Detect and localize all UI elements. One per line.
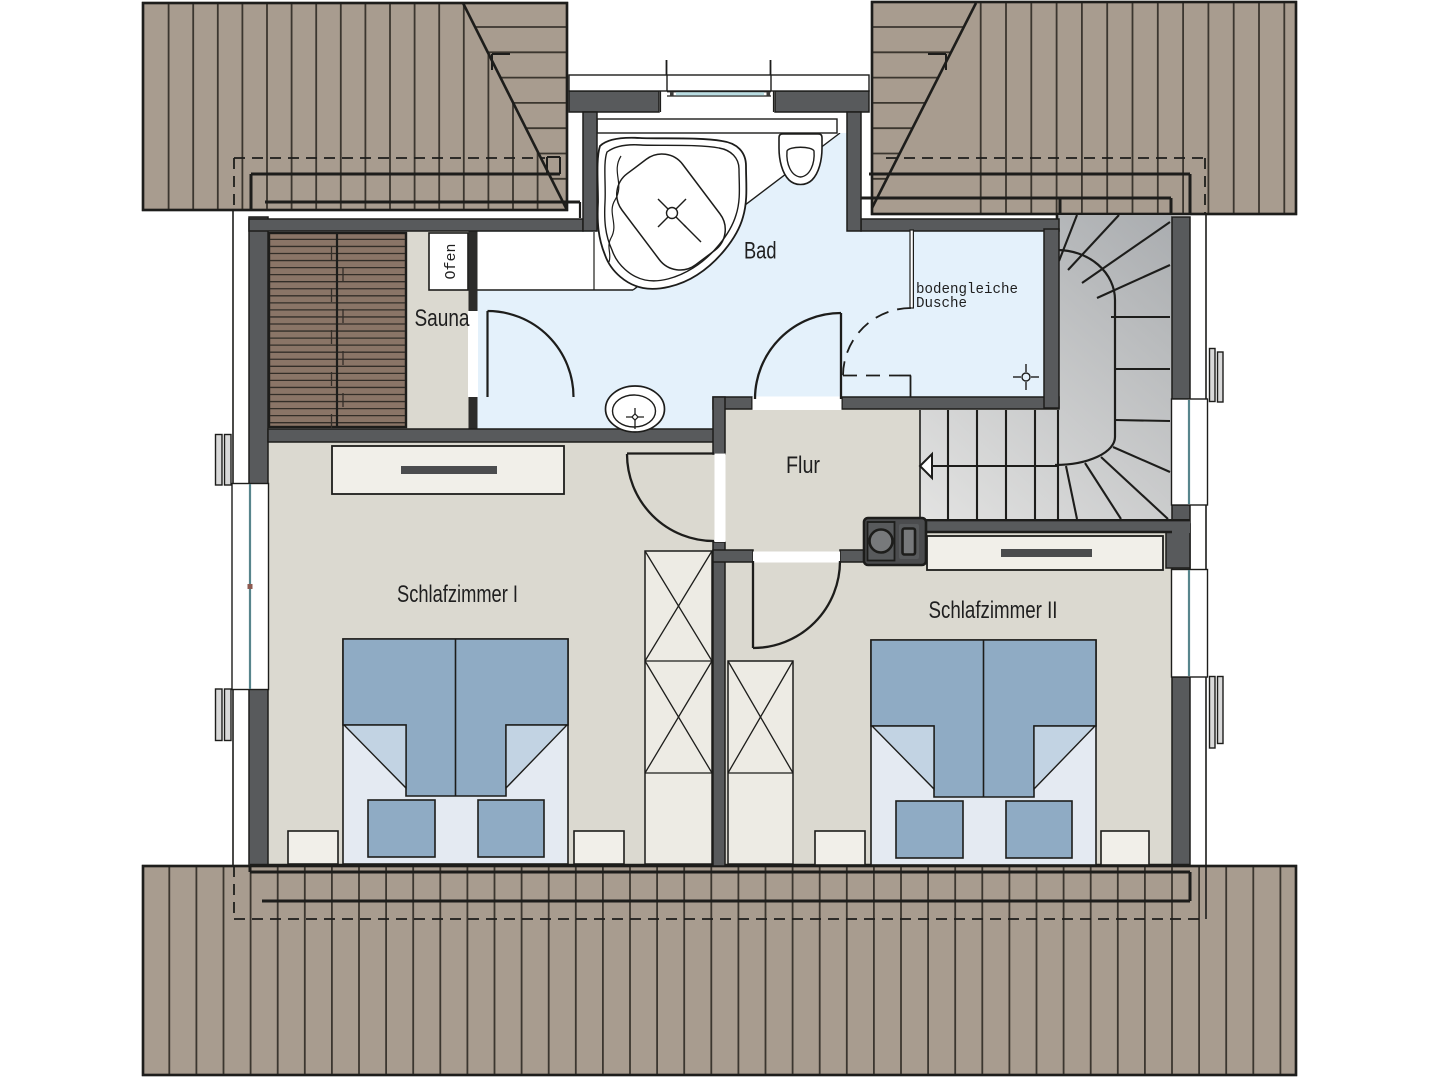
svg-text:Schlafzimmer I: Schlafzimmer I: [397, 581, 518, 608]
svg-text:Schlafzimmer II: Schlafzimmer II: [929, 597, 1058, 624]
svg-text:Dusche: Dusche: [916, 296, 967, 312]
svg-text:Sauna: Sauna: [415, 305, 471, 332]
svg-text:Flur: Flur: [786, 452, 820, 479]
svg-text:Ofen: Ofen: [443, 244, 460, 280]
svg-text:Bad: Bad: [744, 238, 777, 265]
